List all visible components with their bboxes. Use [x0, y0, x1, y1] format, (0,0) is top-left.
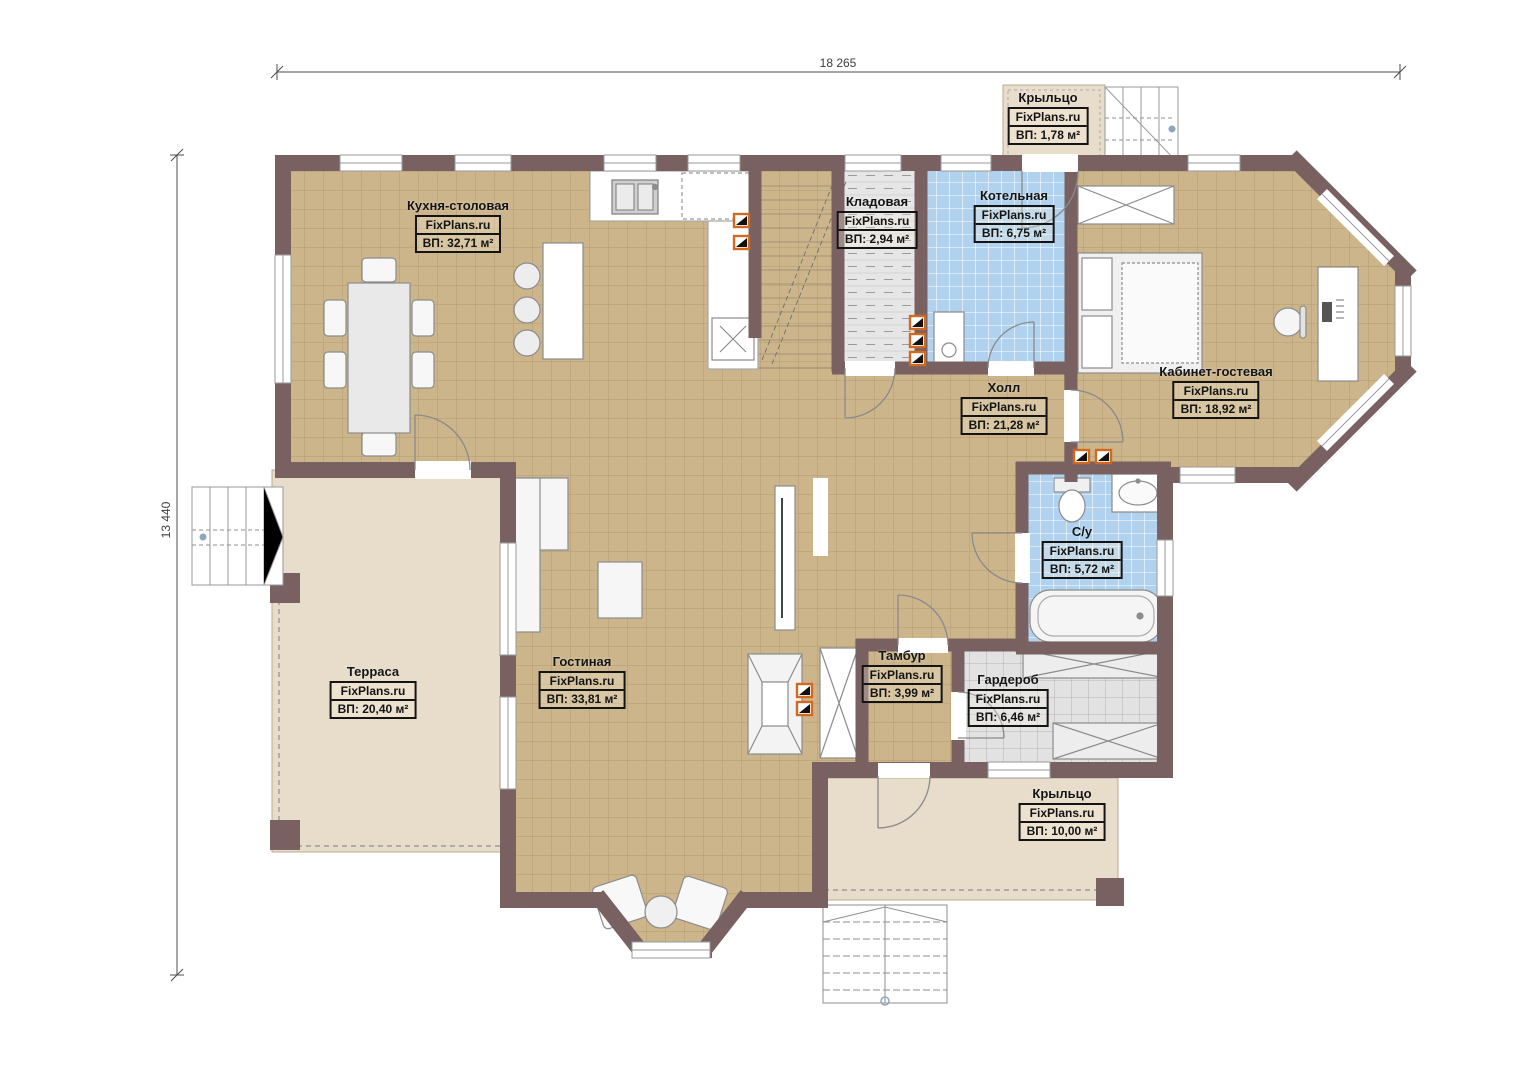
room-site: FixPlans.ru — [1021, 805, 1104, 823]
floor-plan-drawing — [0, 0, 1528, 1080]
window — [1180, 467, 1235, 483]
room-site: FixPlans.ru — [963, 399, 1046, 417]
room-area: ВП: 32,71 м² — [417, 235, 500, 251]
window — [632, 942, 710, 958]
window — [275, 255, 291, 383]
room-site: FixPlans.ru — [1010, 109, 1087, 127]
room-name: Кладовая — [837, 194, 918, 209]
window — [500, 543, 516, 655]
tv-unit — [775, 486, 795, 630]
room-area: ВП: 21,28 м² — [963, 417, 1046, 433]
room-label-porch-top: Крыльцо FixPlans.ruВП: 1,78 м² — [1008, 90, 1089, 145]
room-name: Тамбур — [862, 648, 943, 663]
room-label-pantry: Кладовая FixPlans.ruВП: 2,94 м² — [837, 194, 918, 249]
window — [941, 155, 991, 171]
room-name: С/у — [1042, 524, 1123, 539]
room-area: ВП: 5,72 м² — [1044, 561, 1121, 577]
bar-stool — [514, 263, 540, 289]
window — [1395, 286, 1411, 356]
porch-bottom-steps — [823, 905, 947, 1005]
ottoman — [598, 562, 642, 618]
room-site: FixPlans.ru — [970, 691, 1047, 709]
terrace-floor — [270, 470, 508, 852]
room-label-vestibule: Тамбур FixPlans.ruВП: 3,99 м² — [862, 648, 943, 703]
room-site: FixPlans.ru — [839, 213, 916, 231]
room-area: ВП: 2,94 м² — [839, 231, 916, 247]
room-site: FixPlans.ru — [541, 673, 624, 691]
room-label-study-guest: Кабинет-гостевая FixPlans.ruВП: 18,92 м² — [1159, 364, 1272, 419]
room-label-porch-bottom: Крыльцо FixPlans.ruВП: 10,00 м² — [1019, 786, 1106, 841]
coffee-table — [645, 896, 677, 928]
window — [500, 697, 516, 789]
room-site: FixPlans.ru — [417, 217, 500, 235]
room-site: FixPlans.ru — [332, 683, 415, 701]
office-chair — [1274, 308, 1302, 336]
room-area: ВП: 20,40 м² — [332, 701, 415, 717]
window — [340, 155, 402, 171]
room-name: Кабинет-гостевая — [1159, 364, 1272, 379]
window — [604, 155, 656, 171]
bar-stool — [514, 297, 540, 323]
floor-plan-page: 18 265 13 440 Крыльцо FixPlans.ruВП: 1,7… — [0, 0, 1528, 1080]
room-area: ВП: 3,99 м² — [864, 685, 941, 701]
room-name: Крыльцо — [1008, 90, 1089, 105]
room-name: Котельная — [974, 188, 1055, 203]
computer — [1322, 302, 1332, 322]
room-site: FixPlans.ru — [864, 667, 941, 685]
room-name: Крыльцо — [1019, 786, 1106, 801]
room-area: ВП: 10,00 м² — [1021, 823, 1104, 839]
room-label-living: Гостиная FixPlans.ruВП: 33,81 м² — [539, 654, 626, 709]
window — [455, 155, 511, 171]
room-site: FixPlans.ru — [1044, 543, 1121, 561]
room-label-bathroom: С/у FixPlans.ruВП: 5,72 м² — [1042, 524, 1123, 579]
room-name: Терраса — [330, 664, 417, 679]
room-name: Кухня-столовая — [407, 198, 509, 213]
room-label-wardrobe: Гардероб FixPlans.ruВП: 6,46 м² — [968, 672, 1049, 727]
dimension-height-label: 13 440 — [159, 502, 173, 539]
bar-stool — [514, 330, 540, 356]
boiler-unit — [934, 312, 964, 366]
room-area: ВП: 6,46 м² — [970, 709, 1047, 725]
window — [688, 155, 740, 171]
room-area: ВП: 18,92 м² — [1175, 401, 1258, 417]
room-label-terrace: Терраса FixPlans.ruВП: 20,40 м² — [330, 664, 417, 719]
room-name: Холл — [961, 380, 1048, 395]
room-name: Гардероб — [968, 672, 1049, 687]
room-site: FixPlans.ru — [1175, 383, 1258, 401]
terrace-side-steps — [192, 487, 283, 585]
porch-top-steps — [1105, 87, 1178, 163]
window — [988, 762, 1050, 778]
room-area: ВП: 6,75 м² — [976, 225, 1053, 241]
window — [845, 155, 901, 171]
desk — [1318, 267, 1358, 381]
room-label-hall: Холл FixPlans.ruВП: 21,28 м² — [961, 380, 1048, 435]
room-site: FixPlans.ru — [976, 207, 1053, 225]
window — [1157, 540, 1173, 596]
room-area: ВП: 33,81 м² — [541, 691, 624, 707]
room-area: ВП: 1,78 м² — [1010, 127, 1087, 143]
window — [1188, 155, 1240, 171]
room-name: Гостиная — [539, 654, 626, 669]
room-label-kitchen: Кухня-столовая FixPlans.ruВП: 32,71 м² — [407, 198, 509, 253]
dimension-width-label: 18 265 — [820, 56, 857, 70]
room-label-boiler: Котельная FixPlans.ruВП: 6,75 м² — [974, 188, 1055, 243]
hall-cabinet — [820, 648, 858, 758]
